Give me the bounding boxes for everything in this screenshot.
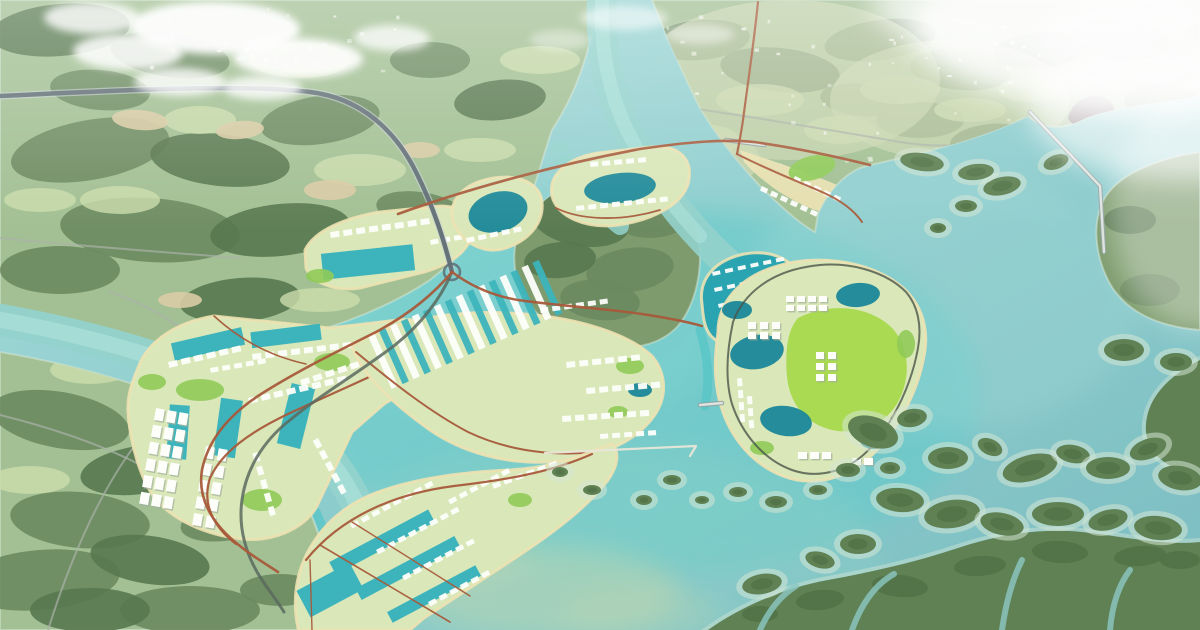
- row-building: [636, 431, 644, 437]
- row-building: [304, 347, 314, 354]
- tower-building: [808, 296, 816, 302]
- aerial-masterplan-image: [0, 0, 1200, 630]
- tower-building: [808, 305, 816, 311]
- tower-building: [864, 458, 873, 465]
- row-building: [575, 414, 584, 421]
- row-building: [740, 414, 746, 422]
- farm-patch: [280, 288, 360, 312]
- row-building: [640, 410, 649, 417]
- row-building: [614, 412, 623, 419]
- row-building: [599, 386, 608, 393]
- park-lawn: [897, 330, 915, 358]
- mangrove-island-core: [813, 487, 823, 493]
- row-building: [651, 382, 660, 389]
- row-building: [738, 390, 744, 398]
- row-building: [624, 432, 632, 438]
- row-building: [638, 383, 647, 390]
- mangrove-island-core: [667, 477, 677, 483]
- row-building: [600, 433, 608, 439]
- park-lawn: [306, 269, 334, 283]
- tower-building: [819, 305, 827, 311]
- mangrove-island-core: [556, 469, 565, 475]
- row-building: [747, 396, 753, 404]
- tower-building: [816, 363, 824, 370]
- row-building: [631, 354, 641, 361]
- tower-building: [810, 452, 819, 459]
- row-building: [252, 353, 262, 360]
- row-building: [612, 385, 621, 392]
- mangrove-island-core: [885, 465, 896, 472]
- row-building: [329, 343, 339, 350]
- tower-building: [828, 352, 836, 359]
- row-building: [625, 384, 634, 391]
- mangrove-island-core: [1044, 507, 1073, 520]
- row-building: [612, 433, 620, 439]
- tower-building: [822, 452, 831, 459]
- row-building: [588, 414, 597, 421]
- tower-building: [816, 352, 824, 359]
- mangrove-island-core: [698, 498, 706, 502]
- row-building: [592, 358, 602, 365]
- tower-building: [816, 374, 824, 381]
- row-building: [566, 361, 576, 368]
- row-building: [601, 413, 610, 420]
- mangrove-island-core: [1167, 357, 1185, 367]
- bare-soil-patch: [158, 292, 202, 308]
- tower-building: [819, 296, 827, 302]
- tower-building: [786, 305, 794, 311]
- park-lawn: [138, 374, 166, 390]
- tower-building: [797, 296, 805, 302]
- tower-building: [760, 332, 768, 339]
- mangrove-island-core: [1113, 344, 1135, 356]
- masterplan-render: [0, 0, 1200, 630]
- mangrove-island-core: [733, 489, 743, 495]
- tower-building: [786, 296, 794, 302]
- row-building: [737, 378, 743, 386]
- tower-building: [828, 363, 836, 370]
- mangrove-island-core: [841, 466, 854, 474]
- row-building: [343, 229, 353, 236]
- row-building: [618, 356, 628, 363]
- forest-patch: [0, 246, 120, 294]
- tower-cluster: [798, 452, 832, 460]
- forest-patch: [30, 588, 150, 630]
- row-building: [317, 345, 327, 352]
- tower-building: [798, 452, 807, 459]
- row-building: [627, 411, 636, 418]
- row-building: [749, 420, 755, 428]
- mangrove-island-core: [770, 499, 782, 506]
- mangrove-island-core: [848, 539, 868, 550]
- tower-building: [772, 322, 780, 329]
- mangrove-island-core: [587, 487, 597, 493]
- tower-building: [772, 332, 780, 339]
- row-building: [562, 415, 571, 422]
- mangrove-island-core: [640, 497, 649, 503]
- row-building: [748, 408, 754, 416]
- mangrove-texture: [1160, 551, 1200, 569]
- row-building: [586, 387, 595, 394]
- row-building: [739, 402, 745, 410]
- lagoon-lake: [722, 301, 752, 319]
- row-building: [291, 348, 301, 355]
- row-building: [330, 231, 340, 238]
- mangrove-island-core: [937, 452, 959, 464]
- row-building: [579, 360, 589, 367]
- tower-building: [797, 305, 805, 311]
- park-lawn: [176, 379, 224, 401]
- park-lawn: [508, 493, 532, 507]
- row-building: [605, 357, 615, 364]
- tower-building: [828, 374, 836, 381]
- tower-building: [760, 322, 768, 329]
- park-lawn: [242, 489, 282, 511]
- tower-building: [748, 322, 756, 329]
- tower-building: [748, 332, 756, 339]
- mangrove-island-core: [1096, 462, 1120, 474]
- row-building: [648, 430, 656, 436]
